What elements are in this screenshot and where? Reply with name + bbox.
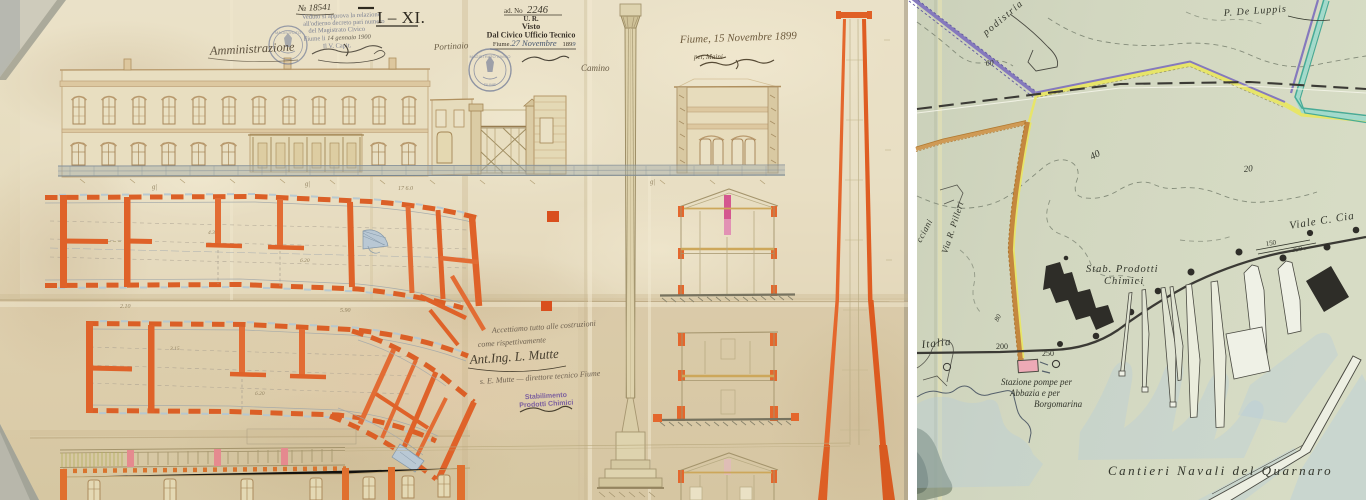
svg-text:Cantieri Navali del Quarnaro: Cantieri Navali del Quarnaro [1108, 463, 1333, 478]
svg-text:Stab. Prodotti: Stab. Prodotti [1086, 264, 1159, 275]
svg-text:60: 60 [985, 58, 994, 68]
svg-text:MAGISTRATO: MAGISTRATO [275, 30, 301, 35]
svg-text:FIUME: FIUME [484, 82, 497, 87]
svg-text:6.20: 6.20 [300, 258, 310, 264]
svg-text:Visto: Visto [522, 21, 541, 31]
svg-text:Camino: Camino [581, 63, 610, 73]
svg-text:ad. No: ad. No [504, 7, 523, 15]
svg-text:I – XI.: I – XI. [377, 8, 425, 27]
svg-text:Portinaio: Portinaio [433, 40, 469, 52]
svg-text:20: 20 [1243, 163, 1253, 174]
svg-text:№ 18541: № 18541 [297, 2, 332, 13]
svg-text:200: 200 [996, 342, 1008, 351]
svg-text:Chimici: Chimici [1104, 276, 1144, 287]
svg-text:ɡ|: ɡ| [305, 180, 311, 188]
svg-text:Stazione pompe per: Stazione pompe per [1001, 377, 1072, 387]
svg-text:MAGISTRATO CIVICO: MAGISTRATO CIVICO [470, 54, 511, 59]
svg-text:per, Maini: per, Maini [693, 53, 723, 61]
svg-text:ɡ|: ɡ| [152, 183, 158, 191]
svg-text:3.15: 3.15 [169, 346, 180, 352]
svg-text:Fiume.: Fiume. [493, 41, 512, 48]
svg-text:250: 250 [1042, 349, 1054, 358]
svg-text:6.20: 6.20 [255, 391, 265, 397]
svg-text:5.90: 5.90 [340, 308, 351, 314]
svg-text:1899: 1899 [563, 41, 577, 48]
svg-text:Borgomarina: Borgomarina [1034, 399, 1083, 409]
svg-text:Abbazia e per: Abbazia e per [1009, 388, 1060, 398]
svg-text:17 6.0: 17 6.0 [398, 186, 413, 192]
svg-text:2.10: 2.10 [120, 304, 131, 310]
svg-text:ɡ|: ɡ| [650, 178, 656, 186]
svg-text:27 Novembre: 27 Novembre [511, 38, 556, 48]
